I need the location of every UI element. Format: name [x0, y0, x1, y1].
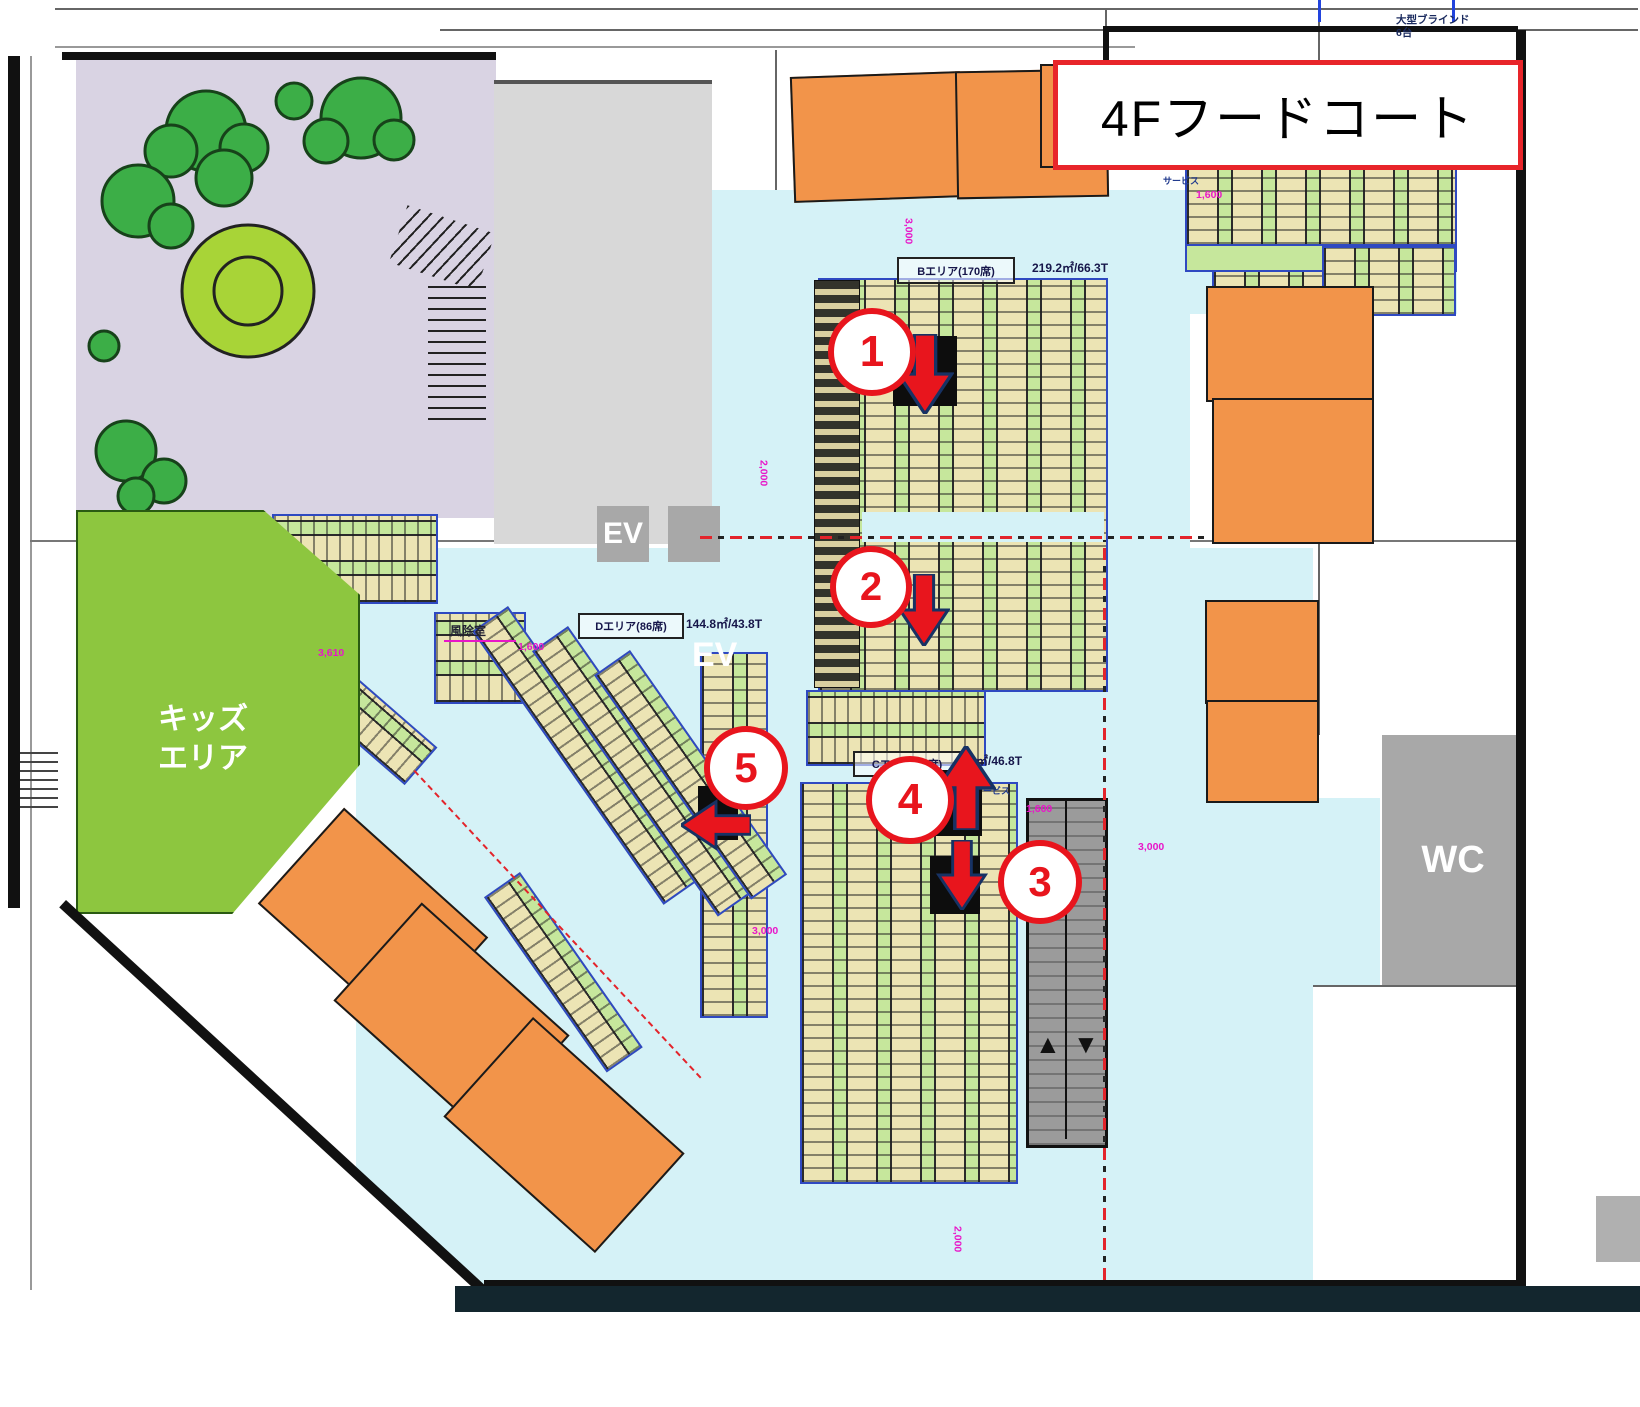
survey-tick-blue-1 — [1318, 0, 1321, 22]
tree-icon — [196, 150, 252, 206]
elevator-box: EV — [597, 506, 649, 562]
tenant-stall-right-2 — [1212, 398, 1374, 544]
route-marker-3: 3 — [998, 840, 1082, 924]
escalator-arrow-down: ▼ — [1073, 1029, 1099, 1060]
kids-label-line2: エリア — [108, 739, 298, 778]
arrow-down-icon — [934, 840, 990, 910]
tenant-stall-right-1 — [1206, 286, 1374, 402]
grid-line-top-1 — [55, 8, 1638, 10]
dimension-text: 3,000 — [903, 218, 914, 244]
ev-label-2: EV — [692, 636, 737, 675]
bottom-right-gray-box — [1596, 1196, 1640, 1262]
backroom-area — [494, 82, 712, 544]
area-b-stats: 219.2㎡/66.3T — [1032, 259, 1108, 276]
dimension-text: 3,610 — [318, 648, 344, 659]
wall-backroom-top — [494, 80, 712, 84]
wc-label: WC — [1421, 839, 1484, 882]
wall-left — [8, 56, 20, 908]
kids-area-label: キッズ エリア — [108, 700, 298, 778]
tree-icon — [276, 83, 312, 119]
area-d-label: Dエリア(86席) — [578, 613, 684, 639]
escalator-arrow-up: ▲ — [1035, 1029, 1061, 1060]
area-b-label: Bエリア(170席) — [897, 257, 1015, 284]
route-marker-5: 5 — [704, 726, 788, 810]
elevator-box-2 — [668, 506, 720, 562]
dimension-text: 2,000 — [952, 1226, 963, 1252]
grid-line-left-vertical — [30, 56, 32, 1290]
area-d-stats: 144.8㎡/43.8T — [686, 615, 762, 632]
kids-label-line1: キッズ — [108, 700, 298, 739]
blinds-note: 大型ブラインド 6台 — [1396, 14, 1470, 39]
wall-right — [1516, 30, 1526, 1288]
blinds-note-line1: 大型ブラインド — [1396, 14, 1470, 27]
route-marker-1: 1 — [828, 308, 916, 396]
dimension-text: 1,600 — [1026, 804, 1052, 815]
dimension-text: 1,600 — [1196, 190, 1222, 201]
tenant-stall-top-1 — [790, 71, 964, 203]
floor-plan-4f-food-court: EV キッズ エリア WC ▼ ▲ ▼ — [0, 0, 1640, 1407]
tree-icon — [89, 331, 119, 361]
wc-block: WC — [1382, 735, 1524, 985]
windbreak-room-label: 風除室 — [450, 622, 486, 639]
service-label-1: サービス — [1163, 174, 1199, 187]
tenant-stall-right-4 — [1206, 700, 1319, 803]
grid-line-top-3 — [55, 46, 1135, 48]
windbreak-dim-line — [444, 640, 516, 642]
dimension-text: 2,000 — [758, 460, 769, 486]
blinds-note-line2: 6台 — [1396, 27, 1470, 40]
page-title: 4Fフードコート — [1053, 60, 1523, 170]
floor-area-right-strip — [1313, 798, 1380, 985]
tables-topright-1 — [1185, 168, 1457, 246]
bottom-dark-band — [455, 1286, 1640, 1312]
route-marker-2: 2 — [830, 546, 912, 628]
route-marker-4: 4 — [866, 756, 954, 844]
dimension-text: 3,000 — [752, 926, 778, 937]
planter-ring-icon — [182, 225, 314, 357]
ev-label: EV — [603, 517, 643, 551]
red-dashdot-vertical — [1103, 540, 1106, 1280]
dimension-text: 3,000 — [1138, 842, 1164, 853]
wall-top-garden — [62, 52, 496, 60]
dimension-text: 1,600 — [518, 642, 544, 653]
stairs-ladder — [428, 285, 486, 420]
tenant-stall-right-3 — [1205, 600, 1319, 704]
red-dashdot-horizontal — [700, 536, 1210, 539]
